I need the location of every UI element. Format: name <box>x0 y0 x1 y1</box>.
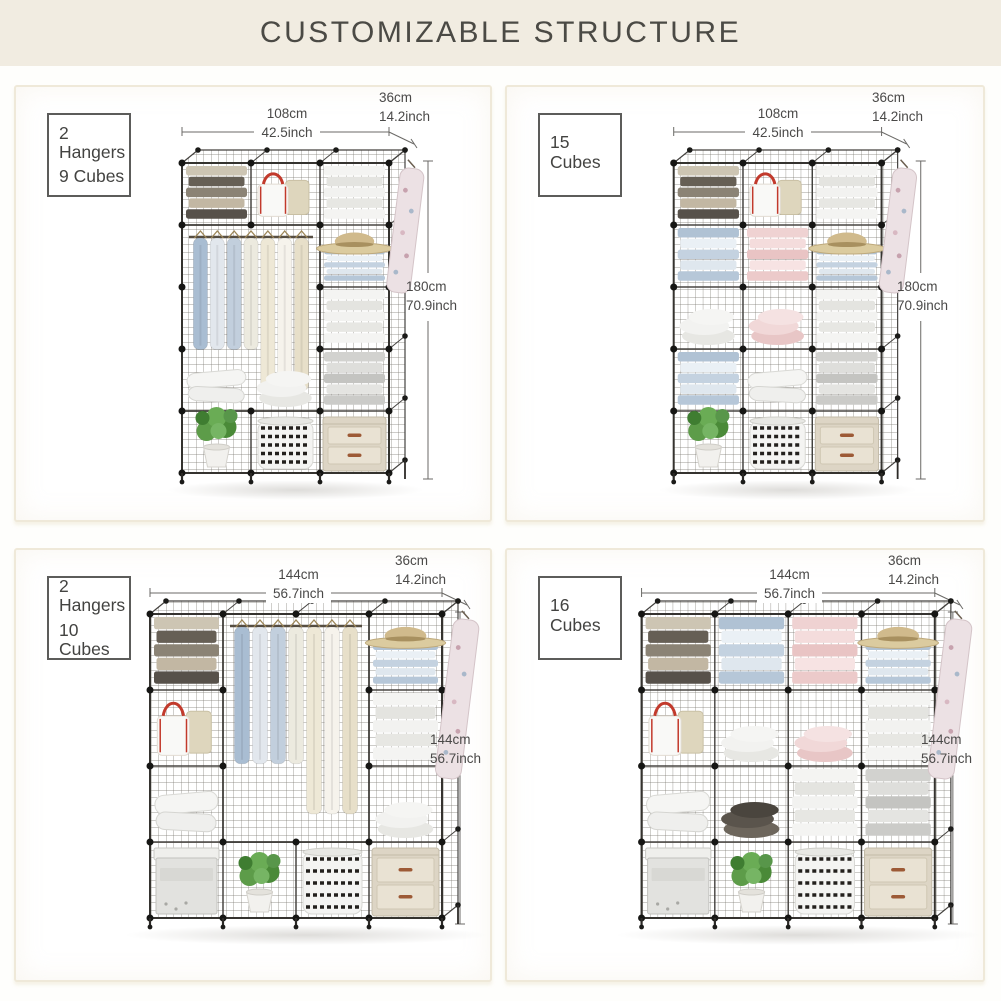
config-label-line-1: 15 Cubes <box>550 133 620 172</box>
config-label-line-2: 10 Cubes <box>59 621 129 660</box>
config-label-box: 2 Hangers 10 Cubes <box>47 576 131 660</box>
panel-2-hangers-10-cubes: 2 Hangers 10 Cubes 144cm 56.7inch 36cm 1… <box>14 548 492 982</box>
depth-dimension-label: 36cm 14.2inch <box>872 88 923 126</box>
config-label-line-1: 2 Hangers <box>59 124 129 163</box>
height-dimension-label: 180cm 70.9inch <box>406 277 457 315</box>
width-dimension-label: 108cm 42.5inch <box>182 104 392 142</box>
config-label-line-1: 2 Hangers <box>59 577 129 616</box>
config-label-box: 2 Hangers 9 Cubes <box>47 113 131 197</box>
panel-2-hangers-9-cubes: 2 Hangers 9 Cubes 108cm 42.5inch 36cm 14… <box>14 85 492 522</box>
depth-dimension-label: 36cm 14.2inch <box>888 551 939 589</box>
panel-16-cubes: 16 Cubes 144cm 56.7inch 36cm 14.2inch 14… <box>505 548 985 982</box>
height-dimension-label: 144cm 56.7inch <box>921 730 972 768</box>
config-label-line-2: 9 Cubes <box>59 167 129 186</box>
height-dimension-label: 180cm 70.9inch <box>897 277 948 315</box>
depth-dimension-label: 36cm 14.2inch <box>379 88 430 126</box>
config-label-box: 16 Cubes <box>538 576 622 660</box>
page-title: CUSTOMIZABLE STRUCTURE <box>260 16 741 50</box>
config-label-line-1: 16 Cubes <box>550 596 620 635</box>
title-band: CUSTOMIZABLE STRUCTURE <box>0 0 1001 66</box>
width-dimension-label: 108cm 42.5inch <box>673 104 883 142</box>
width-dimension-label: 144cm 56.7inch <box>667 565 912 603</box>
depth-dimension-label: 36cm 14.2inch <box>395 551 446 589</box>
panel-15-cubes: 15 Cubes 108cm 42.5inch 36cm 14.2inch 18… <box>505 85 985 522</box>
config-label-box: 15 Cubes <box>538 113 622 197</box>
width-dimension-label: 144cm 56.7inch <box>176 565 421 603</box>
height-dimension-label: 144cm 56.7inch <box>430 730 481 768</box>
